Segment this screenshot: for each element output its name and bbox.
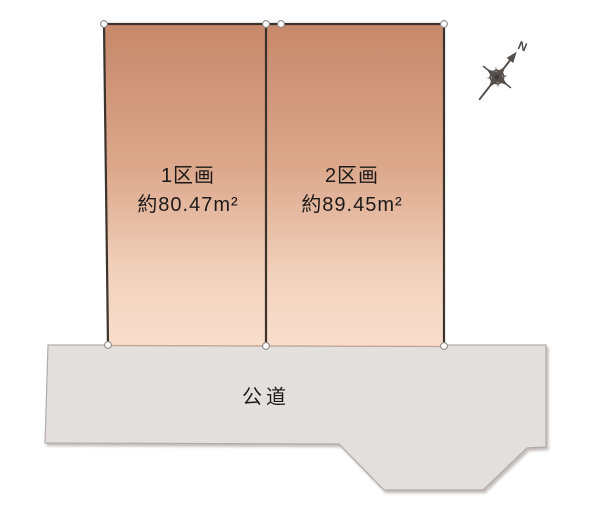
plot-1-name: 1区画 — [137, 162, 238, 191]
plot-2-label: 2区画 約89.45m² — [301, 162, 402, 220]
plot-2-name: 2区画 — [301, 162, 402, 191]
boundary-marker — [263, 343, 270, 350]
plot-1-area: 約80.47m² — [137, 191, 238, 220]
boundary-marker — [263, 21, 270, 28]
road-shape — [45, 345, 546, 490]
road-label: 公道 — [242, 381, 290, 410]
plot-diagram: N 1区画 約80.47m² 2区画 約89.45m² 公道 — [0, 0, 600, 506]
boundary-marker — [105, 342, 112, 349]
boundary-marker — [101, 21, 108, 28]
boundary-marker — [441, 343, 448, 350]
boundary-marker — [441, 21, 448, 28]
diagram-canvas: N — [0, 0, 600, 506]
boundary-marker — [278, 21, 285, 28]
plot-2-area: 約89.45m² — [301, 191, 402, 220]
compass-north-label: N — [516, 38, 529, 54]
plot-1-label: 1区画 約80.47m² — [137, 162, 238, 220]
